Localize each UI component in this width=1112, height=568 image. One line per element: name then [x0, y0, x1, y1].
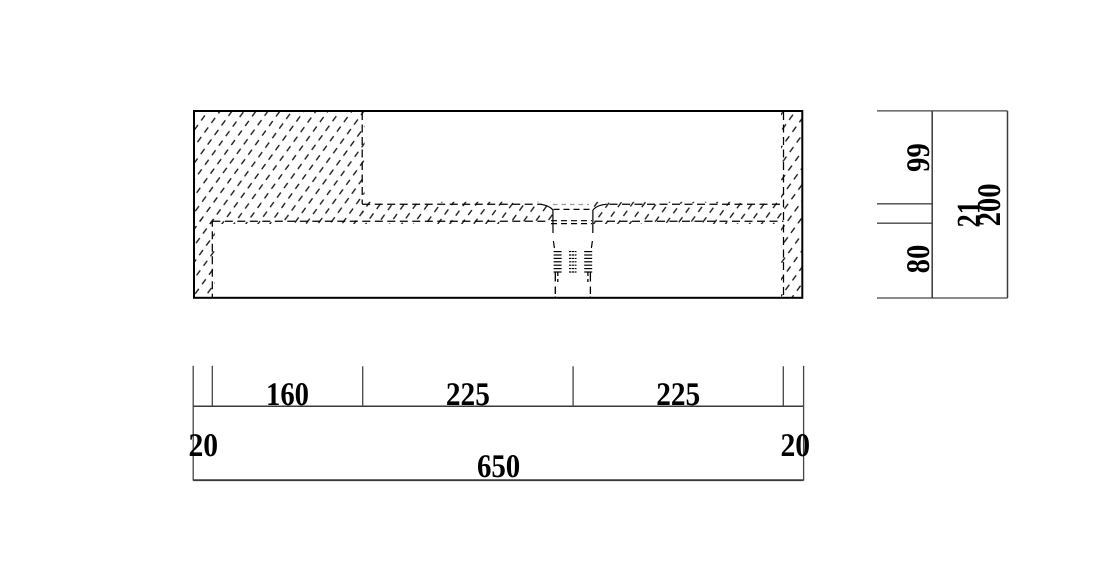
- svg-text:650: 650: [477, 449, 520, 485]
- svg-text:20: 20: [781, 428, 811, 464]
- svg-text:225: 225: [446, 377, 490, 413]
- svg-text:80: 80: [901, 245, 937, 274]
- svg-text:200: 200: [972, 183, 1008, 226]
- svg-text:225: 225: [656, 377, 700, 413]
- svg-text:160: 160: [266, 377, 309, 413]
- svg-text:20: 20: [189, 428, 219, 464]
- svg-text:99: 99: [901, 143, 937, 172]
